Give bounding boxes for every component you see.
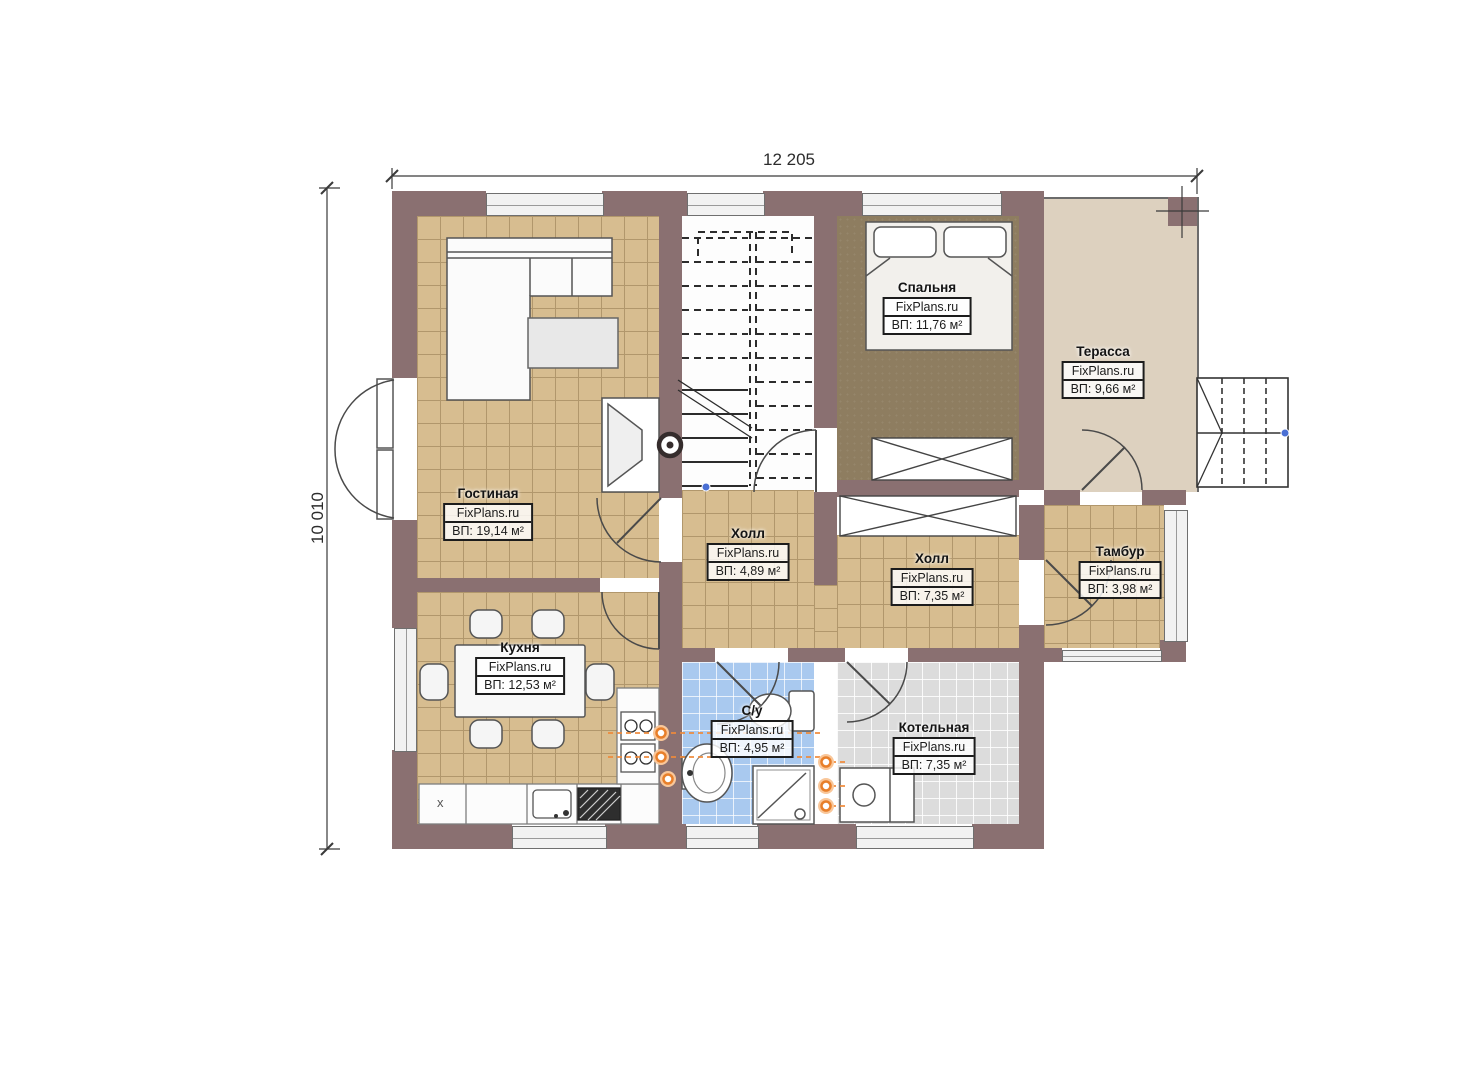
wall-hall-bath-1 (659, 648, 715, 662)
room-name: Гостиная (443, 486, 533, 501)
dimension-height-label: 10 010 (308, 492, 328, 544)
wall-bottom-1 (392, 824, 512, 849)
staircase-floor (682, 216, 814, 490)
watermark: FixPlans.ru (477, 659, 563, 677)
watermark: FixPlans.ru (1081, 563, 1160, 581)
room-area: ВП: 7,35 м² (895, 757, 974, 773)
room-area: ВП: 4,95 м² (713, 740, 792, 756)
room-area: ВП: 11,76 м² (885, 317, 970, 333)
wall-tambour-bottom-2 (1160, 640, 1186, 662)
window-bathroom-bottom (686, 826, 759, 849)
window-stair-top (687, 193, 765, 216)
wall-center-v2b (814, 492, 837, 585)
room-label-terrace: Терасса FixPlans.ru ВП: 9,66 м² (1062, 344, 1145, 399)
room-label-bathroom: С/у FixPlans.ru ВП: 4,95 м² (711, 703, 794, 758)
watermark-box: FixPlans.ru ВП: 3,98 м² (1079, 561, 1162, 599)
room-label-boiler: Котельная FixPlans.ru ВП: 7,35 м² (893, 720, 976, 775)
window-kitchen-bottom (512, 826, 607, 849)
wall-terrace-tambour-2 (1142, 490, 1186, 505)
room-area: ВП: 7,35 м² (893, 588, 972, 604)
wall-left-2 (392, 520, 417, 628)
watermark-box: FixPlans.ru ВП: 4,89 м² (707, 543, 790, 581)
wall-hall-bath-2 (788, 648, 845, 662)
wall-top-3 (763, 191, 862, 216)
wall-center-v2a (814, 216, 837, 428)
watermark: FixPlans.ru (885, 299, 970, 317)
watermark-box: FixPlans.ru ВП: 12,53 м² (475, 657, 565, 695)
watermark-box: FixPlans.ru ВП: 11,76 м² (883, 297, 972, 335)
counter-x-mark: x (437, 795, 444, 810)
watermark: FixPlans.ru (445, 505, 531, 523)
room-area: ВП: 3,98 м² (1081, 581, 1160, 597)
room-label-tambour: Тамбур FixPlans.ru ВП: 3,98 м² (1079, 544, 1162, 599)
room-label-bedroom: Спальня FixPlans.ru ВП: 11,76 м² (883, 280, 972, 335)
watermark-box: FixPlans.ru ВП: 7,35 м² (891, 568, 974, 606)
window-bedroom-top (862, 193, 1002, 216)
room-area: ВП: 12,53 м² (477, 677, 563, 693)
watermark: FixPlans.ru (713, 722, 792, 740)
wall-living-kitchen (417, 578, 600, 592)
room-area: ВП: 9,66 м² (1064, 381, 1143, 397)
window-kitchen-left (394, 628, 417, 752)
window-tambour-bottom (1062, 650, 1162, 662)
wall-center-v1b (659, 562, 682, 824)
watermark: FixPlans.ru (709, 545, 788, 563)
external-stair (1197, 378, 1289, 487)
room-name: Холл (707, 526, 790, 541)
terrace-column (1168, 197, 1197, 226)
window-living-top (486, 193, 604, 216)
room-name: С/у (711, 703, 794, 718)
watermark-box: FixPlans.ru ВП: 19,14 м² (443, 503, 533, 541)
wall-tambour-bottom-1 (1044, 648, 1062, 662)
wall-top-2 (602, 191, 687, 216)
room-name: Холл (891, 551, 974, 566)
watermark-box: FixPlans.ru ВП: 7,35 м² (893, 737, 976, 775)
room-name: Терасса (1062, 344, 1145, 359)
wall-right-1 (1019, 191, 1044, 490)
room-area: ВП: 19,14 м² (445, 523, 531, 539)
wall-bottom-3 (757, 824, 856, 849)
window-boiler-bottom (856, 826, 974, 849)
wall-terrace-tambour-1 (1044, 490, 1080, 505)
room-label-hall2: Холл FixPlans.ru ВП: 7,35 м² (891, 551, 974, 606)
entrance-door (1164, 510, 1188, 642)
room-name: Тамбур (1079, 544, 1162, 559)
wall-hall-boiler (908, 648, 1044, 662)
watermark-box: FixPlans.ru ВП: 4,95 м² (711, 720, 794, 758)
room-area: ВП: 4,89 м² (709, 563, 788, 579)
watermark: FixPlans.ru (1064, 363, 1143, 381)
room-name: Котельная (893, 720, 976, 735)
watermark: FixPlans.ru (893, 570, 972, 588)
room-name: Спальня (883, 280, 972, 295)
kitchen-floor (417, 592, 659, 824)
wall-bottom-2 (605, 824, 686, 849)
room-name: Кухня (475, 640, 565, 655)
wall-bedroom-hall (837, 480, 1019, 497)
wall-center-v1a (659, 216, 682, 498)
room-label-hall1: Холл FixPlans.ru ВП: 4,89 м² (707, 526, 790, 581)
watermark: FixPlans.ru (895, 739, 974, 757)
hall-connector-floor (814, 585, 837, 648)
room-label-kitchen: Кухня FixPlans.ru ВП: 12,53 м² (475, 640, 565, 695)
watermark-box: FixPlans.ru ВП: 9,66 м² (1062, 361, 1145, 399)
room-label-living: Гостиная FixPlans.ru ВП: 19,14 м² (443, 486, 533, 541)
dimension-width-label: 12 205 (763, 150, 815, 170)
wall-left-1 (392, 191, 417, 378)
floor-plan-canvas: 12 205 10 010 (0, 0, 1473, 1080)
bedroom-floor (837, 216, 1019, 480)
wall-right-2 (1019, 505, 1044, 560)
